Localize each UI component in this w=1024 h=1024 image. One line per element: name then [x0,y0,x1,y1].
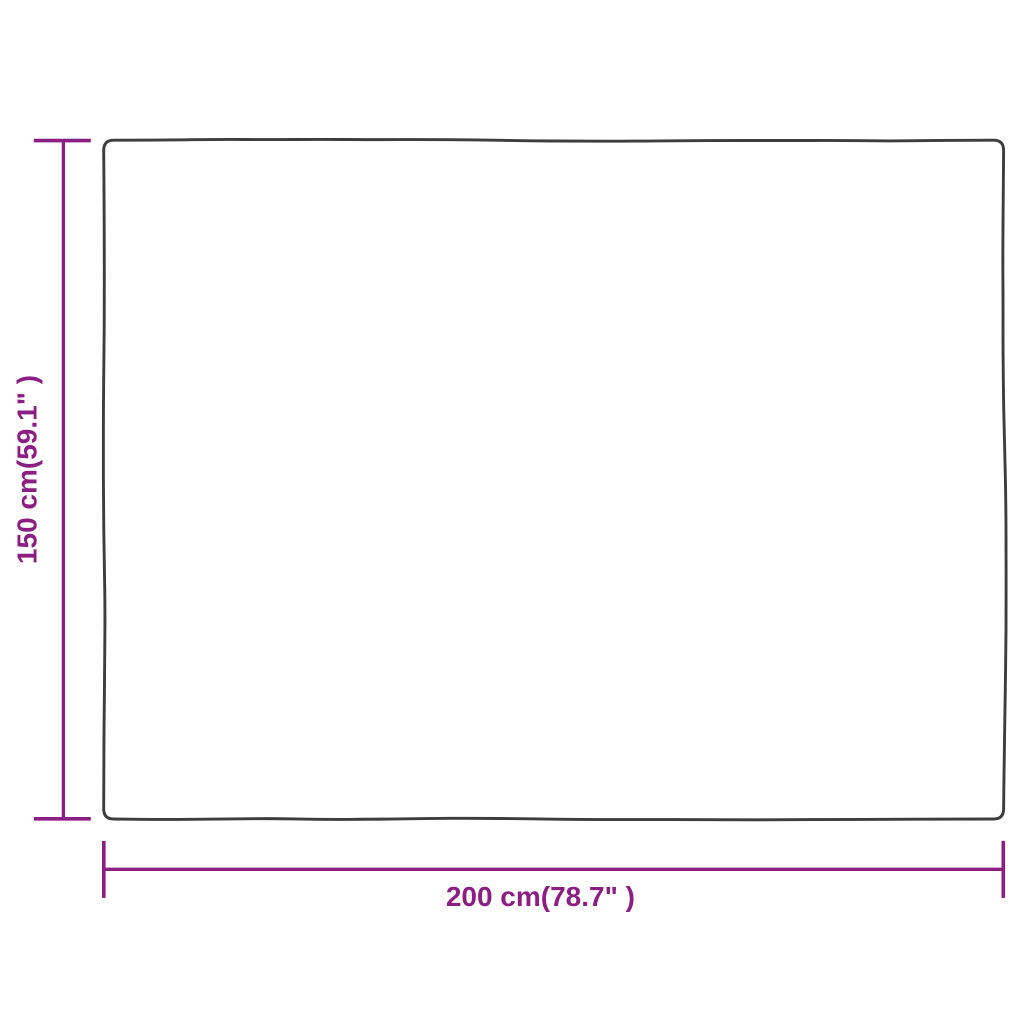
svg-text:200 cm(78.7" ): 200 cm(78.7" ) [446,881,635,912]
svg-text:150 cm(59.1" ): 150 cm(59.1" ) [12,375,43,564]
